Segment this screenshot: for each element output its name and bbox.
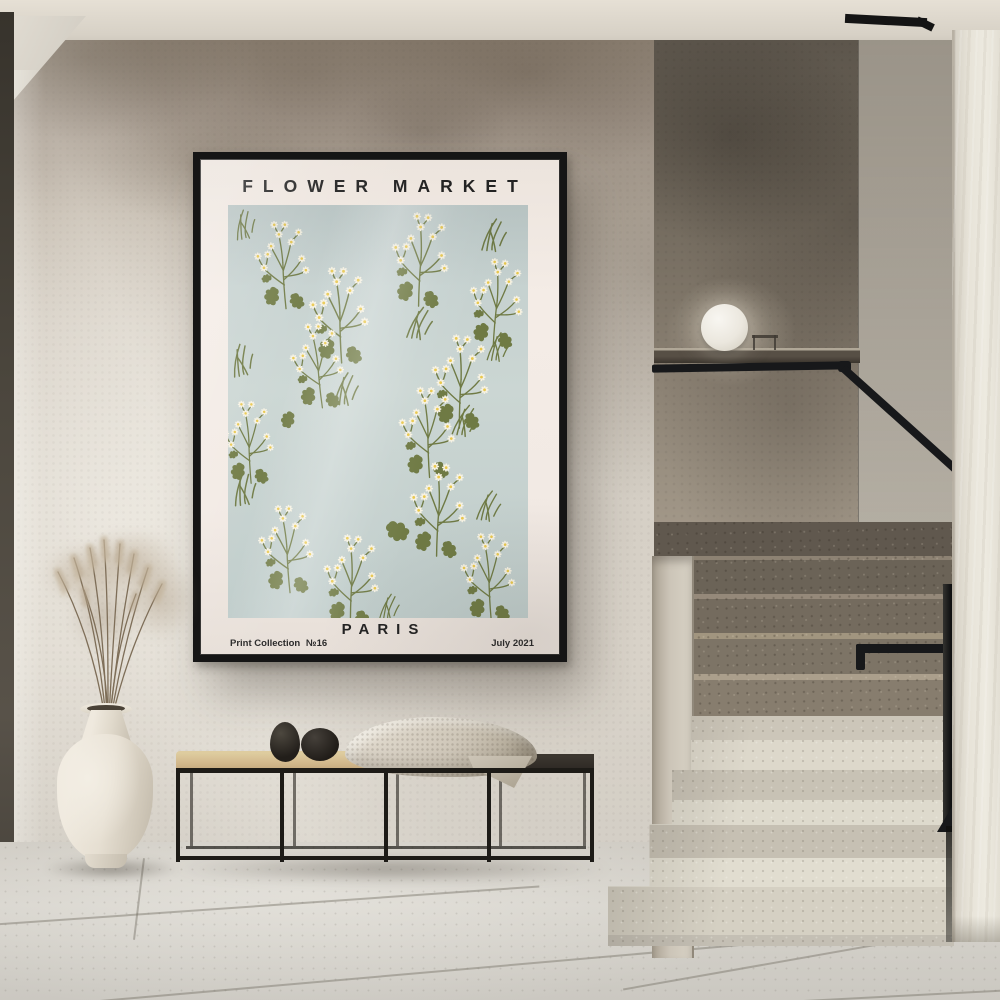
bench-leg [280,768,284,862]
flower-market-poster: FLOWER MARKET [193,152,567,662]
bench-back-leg [293,764,296,846]
sphere-lamp [701,304,748,351]
handrail-bracket-hook [856,644,865,670]
poster-title: FLOWER MARKET [200,173,560,199]
poster-meta-row: Print Collection №16 July 2021 [200,638,560,652]
bench-back-leg [583,764,586,846]
handrail-bracket [856,644,948,653]
bench-leg [487,768,491,862]
poster-collection-label: Print Collection [230,638,300,649]
vase-foot [85,854,127,868]
bench-leg [176,768,180,862]
foreground-column [952,30,1000,942]
poster-city-label: PARIS [200,621,560,638]
bench-back-leg [396,764,399,846]
decorative-stone [301,728,339,761]
wall-light-streak [14,70,44,850]
lamp-stand-leg [774,335,776,350]
bench-leg [384,768,388,862]
bench-back-leg [190,764,193,846]
poster-artwork-panel [228,205,528,618]
stairs-upper-flight [654,522,954,718]
hallway-scene: FLOWER MARKET [0,0,1000,1000]
daisy-pattern [228,205,528,618]
decorative-stone [270,722,300,762]
lamp-stand-leg [753,335,755,350]
poster-date: July 2021 [491,638,534,649]
stairwell-side-wall [858,40,954,568]
ceramic-vase [57,734,153,860]
bench-leg [590,768,594,862]
dried-flowers [20,510,220,730]
poster-collection-number: №16 [306,638,327,649]
